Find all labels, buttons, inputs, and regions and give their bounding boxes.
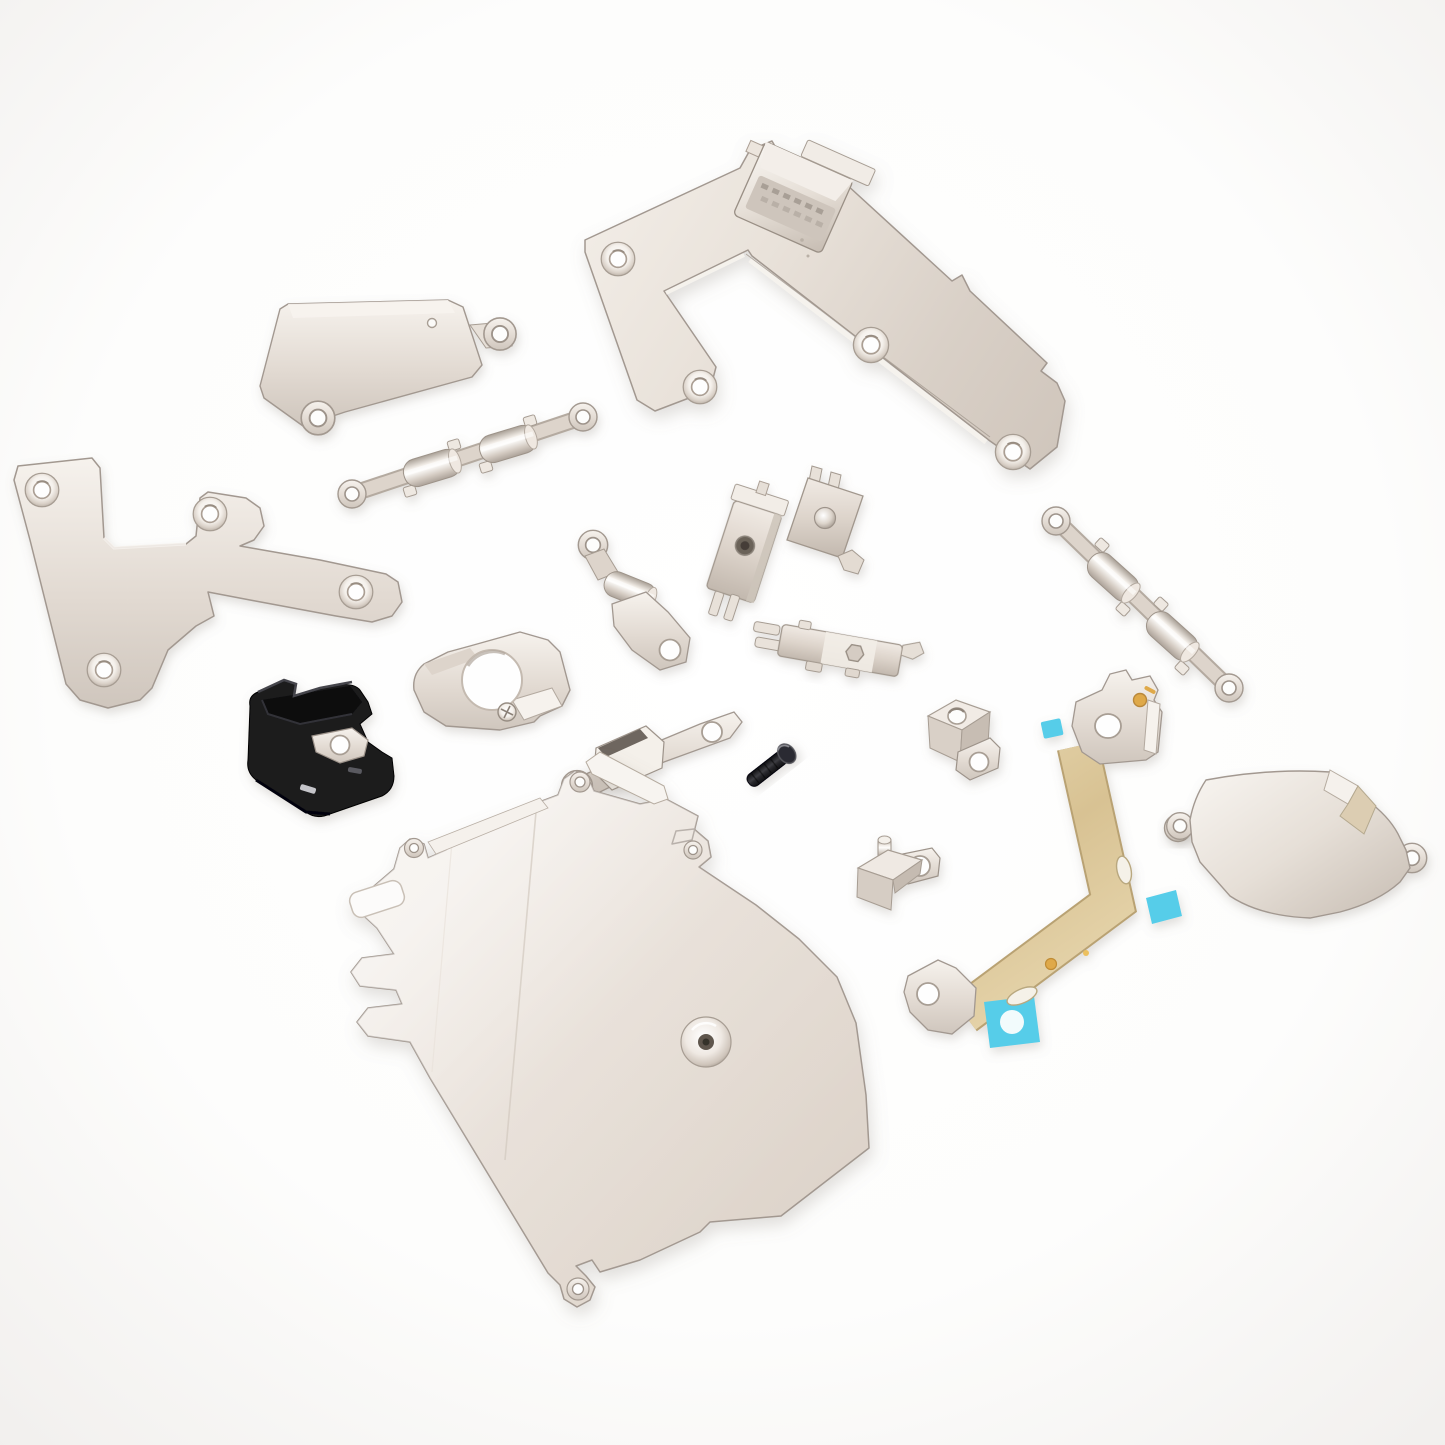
screw-hole: [87, 653, 121, 687]
screw-hole: [339, 575, 373, 609]
dust-speck: [800, 238, 804, 242]
eyelet: [338, 480, 366, 508]
pin-hole: [428, 319, 437, 328]
eyelet-hole: [410, 844, 419, 853]
foot-hole: [660, 640, 681, 661]
camera-opening: [462, 650, 522, 710]
screw-hole: [25, 473, 59, 507]
ear-hole: [689, 846, 698, 855]
adhesive-pad-hole: [1000, 1010, 1024, 1034]
dust-speck: [807, 255, 810, 258]
gold-contact-small: [1083, 950, 1089, 956]
eyelet: [1167, 813, 1194, 840]
eyelet: [569, 403, 597, 431]
parts-photo-canvas: [0, 0, 1445, 1445]
gold-contact: [1046, 959, 1057, 970]
screw-hole: [193, 497, 227, 531]
eyelet-ear: [301, 401, 335, 435]
bottom-eyelet-hole: [573, 1284, 584, 1295]
boss-hole-center: [703, 1039, 710, 1046]
gold-contact: [1134, 694, 1147, 707]
screw-hole: [995, 434, 1030, 469]
product-photo: [0, 0, 1445, 1445]
tab-hole: [331, 736, 350, 755]
top-nub: [798, 620, 811, 630]
bracket-hole: [917, 983, 939, 1005]
tab-hole: [970, 753, 989, 772]
eyelet-ear: [484, 318, 516, 350]
eyelet: [1215, 674, 1243, 702]
dome-button: [815, 508, 836, 529]
screw-hole: [853, 327, 888, 362]
stud-cap: [878, 836, 891, 844]
screw-hole: [683, 370, 717, 404]
eyelet-hole: [575, 777, 585, 787]
end-hole: [702, 722, 722, 742]
eyelet: [1042, 507, 1070, 535]
screw-hole: [601, 242, 635, 276]
bottom-tab: [845, 668, 860, 678]
bracket-hole: [1095, 714, 1121, 738]
